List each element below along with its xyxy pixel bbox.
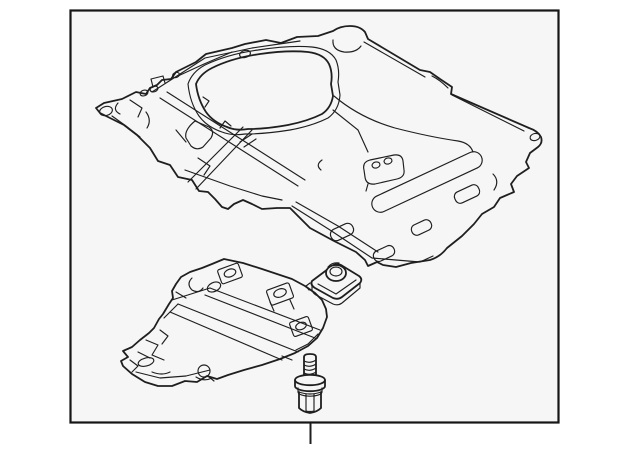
bolt-washer — [295, 375, 325, 385]
parts-diagram-canvas — [0, 0, 640, 453]
parts-diagram-page — [0, 0, 640, 453]
